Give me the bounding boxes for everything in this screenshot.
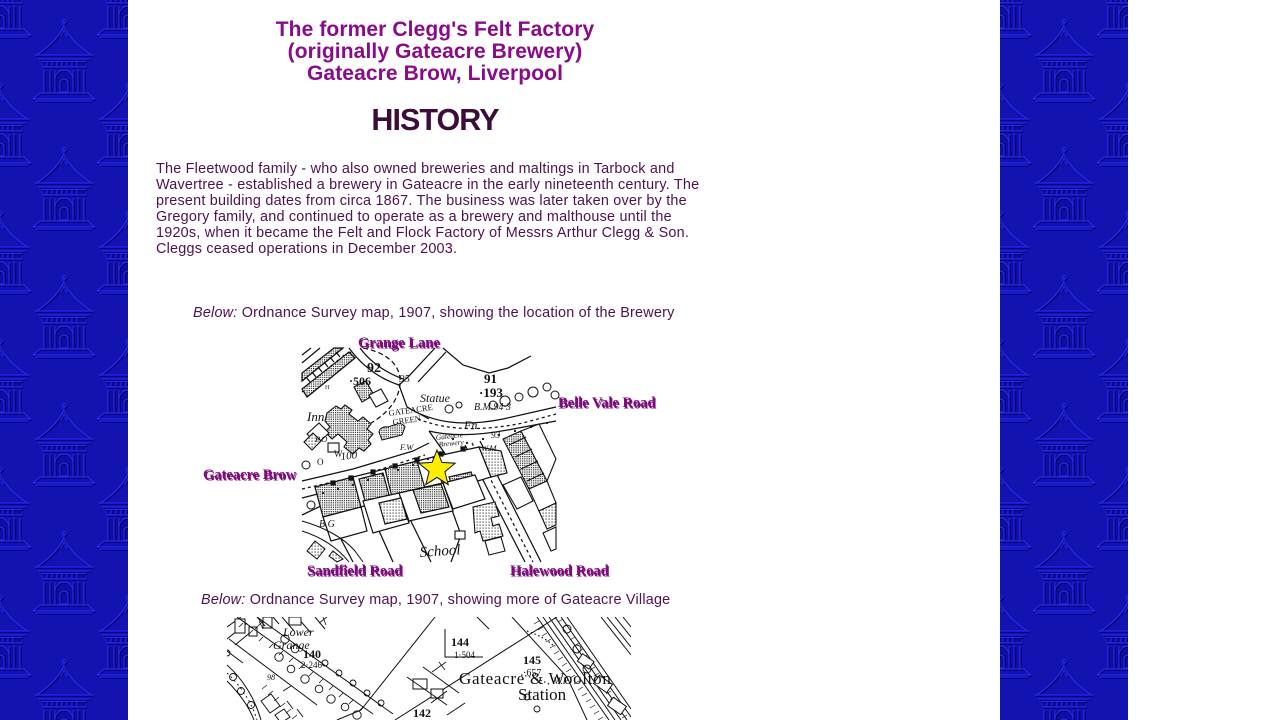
svg-text:·193: ·193: [479, 385, 503, 400]
svg-text:W.M: W.M: [481, 443, 497, 453]
svg-text:93: 93: [491, 430, 501, 440]
svg-text:O: O: [317, 457, 324, 467]
svg-text:W: W: [334, 449, 343, 459]
svg-text:School: School: [419, 542, 461, 561]
svg-text:Gateacre Brow: Gateacre Brow: [203, 467, 297, 483]
svg-text:Inn: Inn: [306, 409, 324, 424]
svg-text:M.P: M.P: [552, 676, 569, 686]
svg-text:145: 145: [523, 653, 541, 667]
svg-text:98: 98: [267, 673, 275, 682]
svg-text:B.M.94·3: B.M.94·3: [474, 402, 511, 413]
svg-text:95: 95: [399, 373, 411, 385]
svg-text:B.G: B.G: [319, 519, 335, 530]
svg-text:144: 144: [451, 635, 469, 649]
svg-text:142: 142: [413, 706, 431, 720]
svg-text:H: H: [325, 385, 330, 391]
svg-text:1·504: 1·504: [454, 650, 475, 660]
svg-text:·506: ·506: [349, 374, 371, 388]
svg-text:P.O: P.O: [314, 434, 327, 444]
svg-text:Belle Vale Road: Belle Vale Road: [558, 395, 655, 411]
svg-text:Sandfield Road: Sandfield Road: [307, 563, 403, 578]
svg-text:91: 91: [484, 371, 497, 386]
svg-text:2·246: 2·246: [301, 660, 322, 670]
svg-text:Grange Lane: Grange Lane: [358, 335, 440, 351]
svg-text:100: 100: [340, 449, 358, 463]
svg-text:F.W: F.W: [399, 442, 414, 452]
svg-text:Lower: Lower: [282, 625, 314, 639]
svg-text:Halewood Road: Halewood Road: [510, 563, 609, 578]
svg-text:Station: Station: [518, 685, 567, 704]
svg-text:Fn: Fn: [463, 418, 477, 432]
svg-text:140: 140: [303, 647, 321, 661]
